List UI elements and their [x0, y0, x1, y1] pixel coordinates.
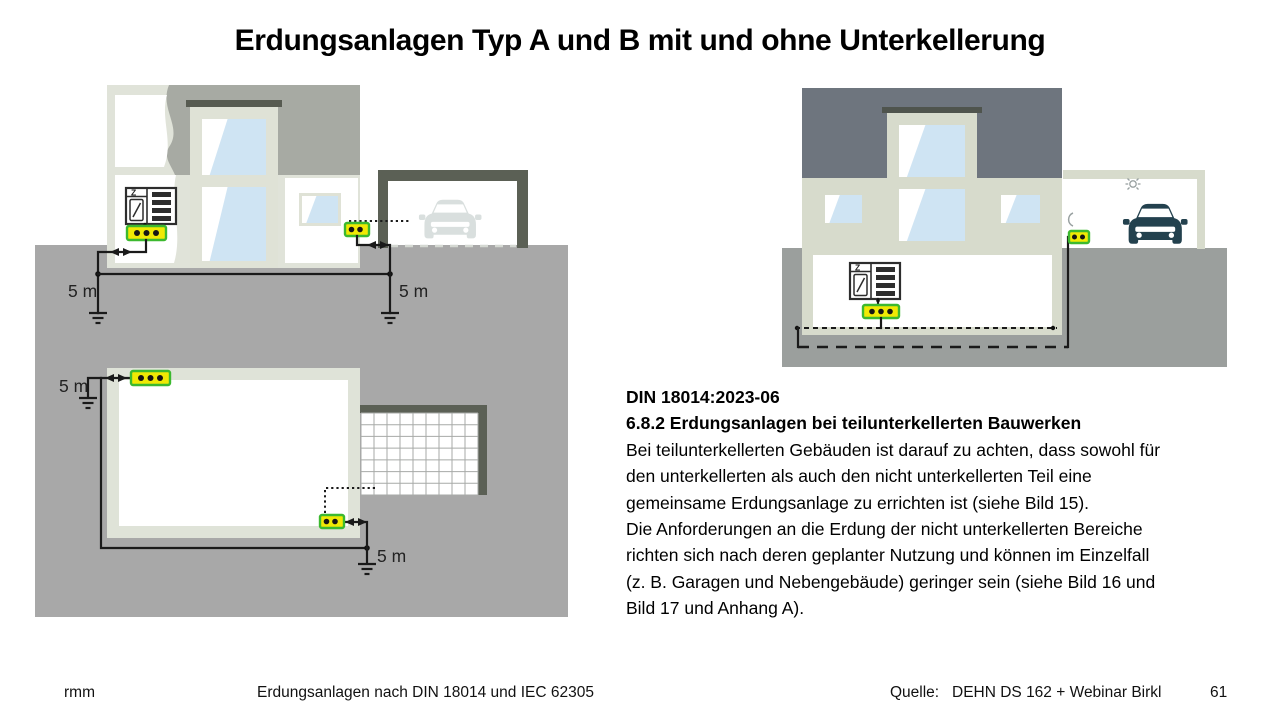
diagram-house-partial-basement: Z	[780, 85, 1230, 370]
body-line: (z. B. Garagen und Nebengebäude) geringe…	[626, 569, 1274, 595]
diagram-house-with-basement-and-plan-view: Z 5 m	[33, 75, 568, 620]
equipotential-bonding-bar	[345, 223, 369, 236]
body-line: Bild 17 und Anhang A).	[626, 595, 1274, 621]
garage-wall-right	[1197, 170, 1205, 249]
footer-page-number: 61	[1210, 684, 1227, 702]
body-heading-norm: DIN 18014:2023-06	[626, 384, 1274, 410]
slide-title: Erdungsanlagen Typ A und B mit und ohne …	[0, 24, 1280, 58]
footer-topic: Erdungsanlagen nach DIN 18014 und IEC 62…	[257, 684, 594, 702]
body-line: gemeinsame Erdungsanlage zu errichten is…	[626, 490, 1274, 516]
tower-roof-bar	[186, 100, 282, 107]
plan-garage-wall-right	[478, 405, 487, 495]
body-line: richten sich nach deren geplanter Nutzun…	[626, 542, 1274, 568]
garage-wall-right	[517, 170, 528, 248]
distance-label: 5 m	[59, 376, 88, 396]
plan-garage-wall-top	[360, 405, 487, 413]
distance-label: 5 m	[377, 546, 406, 566]
body-line: Bei teilunterkellerten Gebäuden ist dara…	[626, 437, 1274, 463]
meter-z-label: Z	[855, 263, 860, 273]
distance-label: 5 m	[399, 281, 428, 301]
equipotential-bonding-bar	[320, 515, 344, 528]
garage-wall-left	[378, 181, 388, 248]
plan-house-interior	[119, 380, 348, 526]
room-upper-left	[115, 95, 168, 167]
garage-roof	[1063, 170, 1205, 179]
body-line: den unterkellerten als auch den nicht un…	[626, 463, 1274, 489]
body-text-block: DIN 18014:2023-06 6.8.2 Erdungsanlagen b…	[626, 384, 1274, 622]
garage-roof	[378, 170, 528, 181]
plan-garage	[360, 405, 487, 495]
footer-source-label: Quelle:	[890, 684, 939, 702]
distance-label: 5 m	[68, 281, 97, 301]
tower-roof-bar	[882, 107, 982, 113]
garage-cross-section	[378, 170, 528, 248]
basement-room	[813, 255, 1052, 327]
body-line: Die Anforderungen an die Erdung der nich…	[626, 516, 1274, 542]
presentation-slide: Erdungsanlagen Typ A und B mit und ohne …	[0, 0, 1280, 720]
body-heading-section: 6.8.2 Erdungsanlagen bei teilunterkeller…	[626, 410, 1274, 436]
meter-z-label: Z	[131, 188, 136, 198]
footer-source-value: DEHN DS 162 + Webinar Birkl	[952, 684, 1161, 702]
footer-author: rmm	[64, 684, 95, 702]
